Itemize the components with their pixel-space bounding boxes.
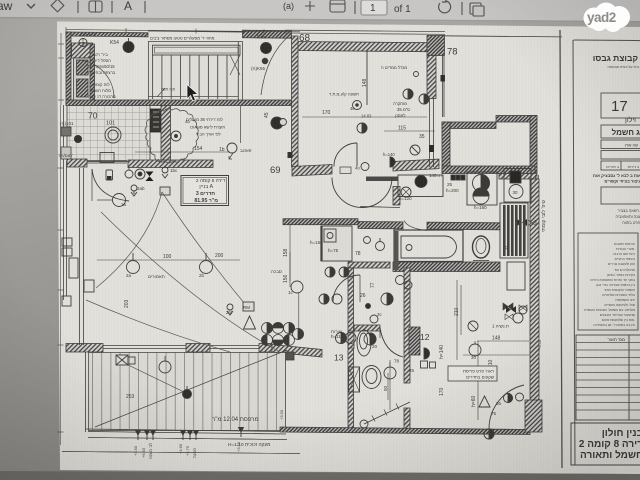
svg-text:yad2: yad2 [587,10,616,25]
